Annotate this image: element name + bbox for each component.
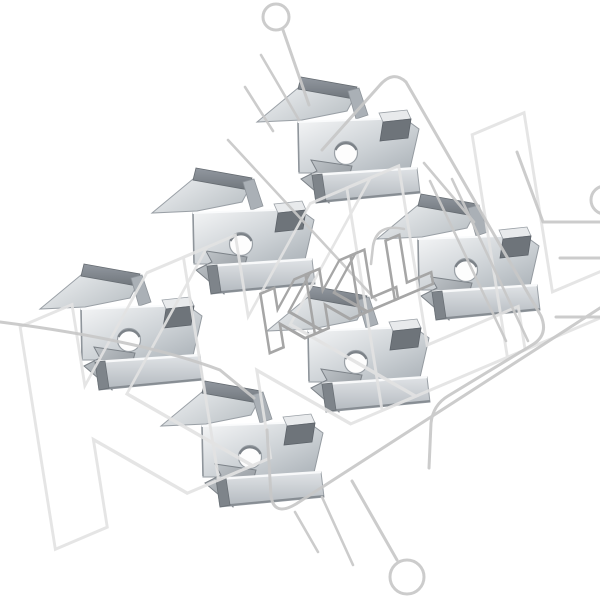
product-photo-canvas: KKLL — [0, 0, 600, 600]
product-image: KKLL — [0, 0, 600, 600]
